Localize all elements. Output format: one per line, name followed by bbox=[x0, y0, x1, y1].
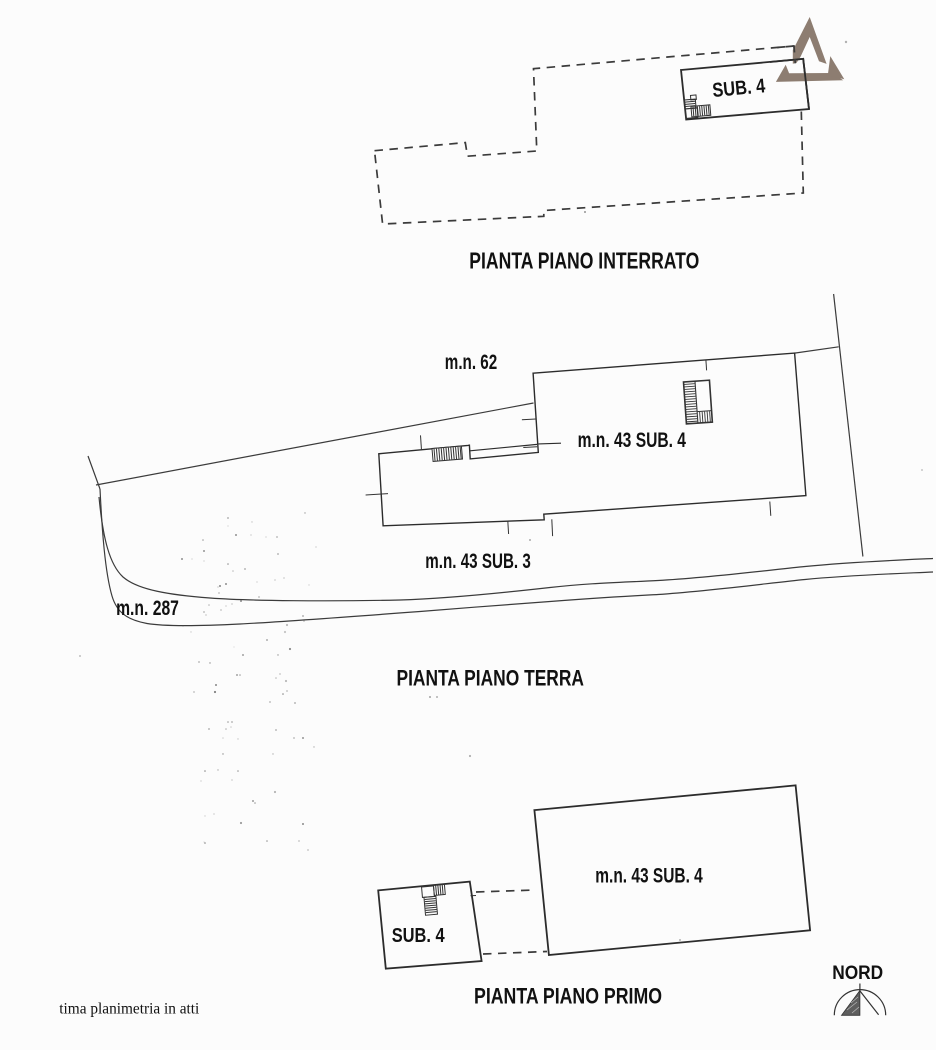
svg-text:m.n. 287: m.n. 287 bbox=[116, 597, 179, 620]
svg-text:tima planimetria in atti: tima planimetria in atti bbox=[59, 1001, 200, 1018]
svg-text:SUB. 4: SUB. 4 bbox=[392, 925, 446, 947]
svg-text:m.n. 43 SUB. 4: m.n. 43 SUB. 4 bbox=[595, 864, 703, 887]
svg-text:PIANTA PIANO INTERRATO: PIANTA PIANO INTERRATO bbox=[469, 248, 699, 274]
svg-text:PIANTA PIANO TERRA: PIANTA PIANO TERRA bbox=[397, 666, 585, 691]
svg-text:NORD: NORD bbox=[832, 963, 883, 984]
svg-text:m.n. 62: m.n. 62 bbox=[445, 351, 497, 374]
svg-text:PIANTA PIANO PRIMO: PIANTA PIANO PRIMO bbox=[474, 983, 662, 1008]
svg-text:m.n. 43 SUB. 3: m.n. 43 SUB. 3 bbox=[425, 550, 531, 573]
svg-text:m.n. 43 SUB. 4: m.n. 43 SUB. 4 bbox=[578, 429, 687, 452]
